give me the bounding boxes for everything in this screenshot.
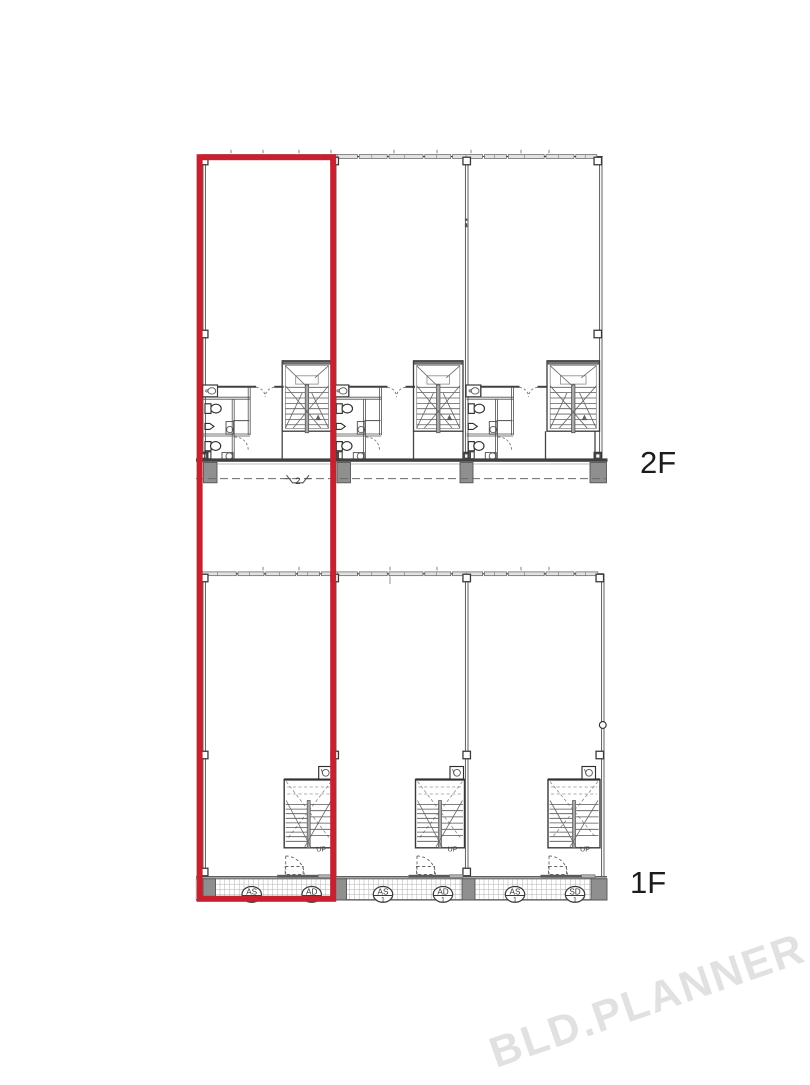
svg-text:2: 2: [295, 476, 300, 487]
svg-text:1: 1: [513, 897, 517, 904]
svg-text:AS: AS: [510, 888, 521, 897]
svg-text:2F: 2F: [640, 445, 676, 480]
svg-text:UP: UP: [448, 844, 458, 853]
svg-text:AS: AS: [378, 888, 389, 897]
svg-text:AS: AS: [246, 888, 257, 897]
svg-text:AD: AD: [306, 888, 317, 897]
svg-text:1: 1: [573, 897, 577, 904]
svg-text:UP: UP: [316, 844, 326, 853]
svg-text:1F: 1F: [630, 865, 666, 900]
svg-text:SD: SD: [569, 888, 580, 897]
svg-text:1: 1: [441, 897, 445, 904]
svg-text:AD: AD: [437, 888, 448, 897]
svg-text:UP: UP: [580, 844, 590, 853]
svg-text:1: 1: [381, 897, 385, 904]
